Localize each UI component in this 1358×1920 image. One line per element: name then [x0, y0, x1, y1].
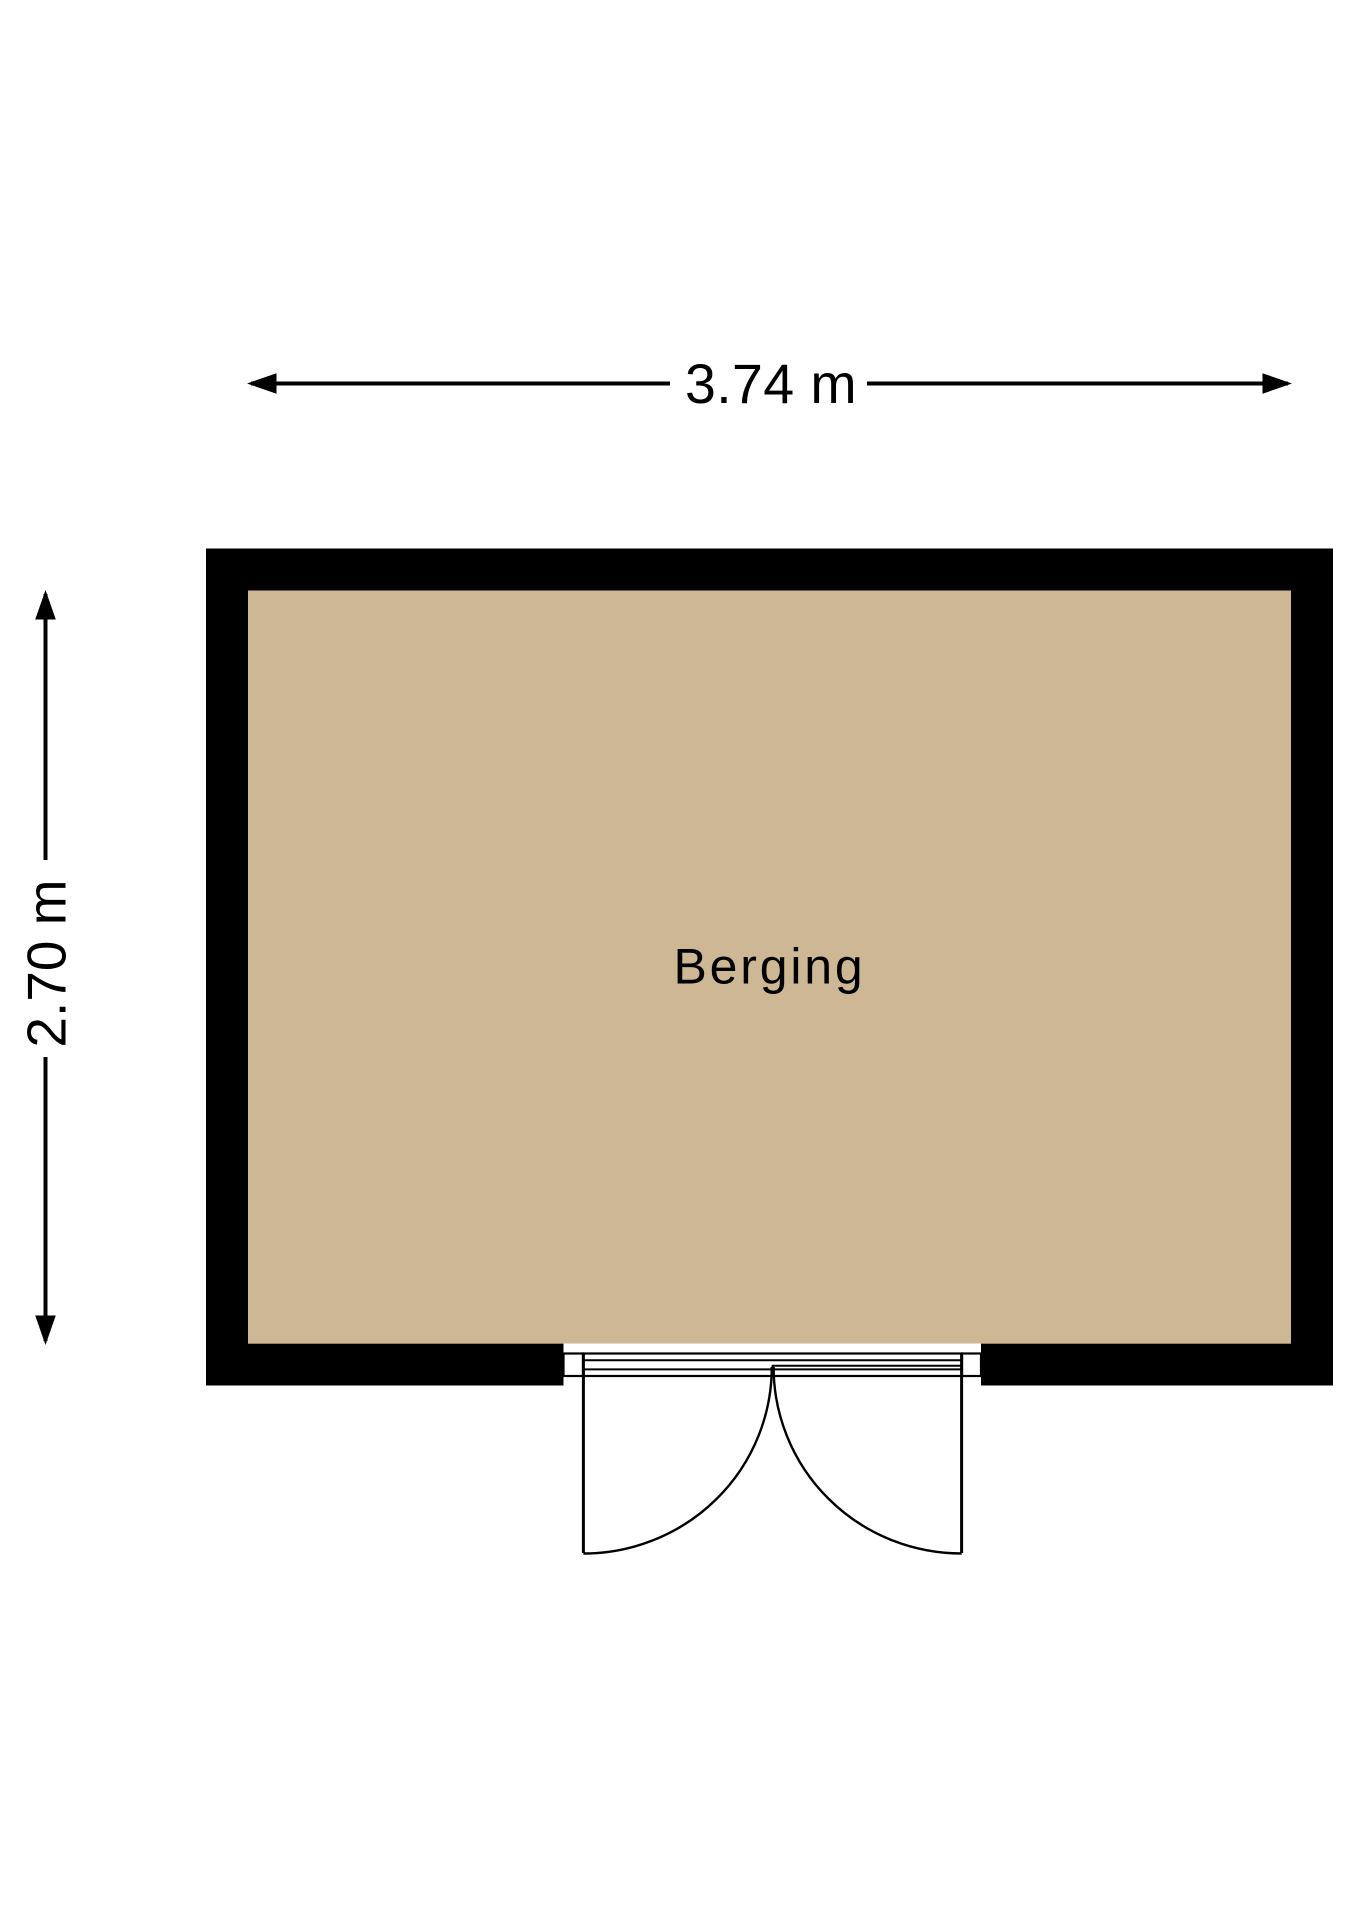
svg-text:Berging: Berging: [674, 939, 866, 995]
svg-text:2.70 m: 2.70 m: [16, 879, 78, 1047]
svg-text:3.74 m: 3.74 m: [685, 353, 857, 415]
